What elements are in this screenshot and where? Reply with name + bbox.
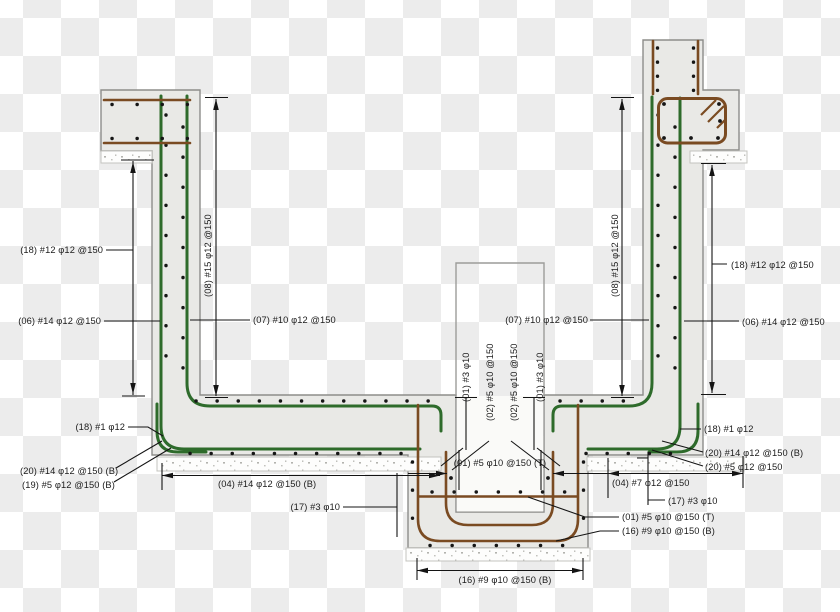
- callout-slab-bottom-dist-left: (19) #5 φ12 @150 (B): [22, 480, 115, 490]
- callout-slab-corner-right: (18) #1 φ12: [704, 424, 754, 434]
- callout-pit-top-mesh-right: (01) #5 φ10 @150 (T): [622, 512, 714, 522]
- callout-right-wall-horiz-outer: (18) #12 φ12 @150: [731, 260, 814, 270]
- callout-center-dowel-right: (02) #5 φ10 @150: [509, 343, 519, 421]
- callout-right-wall-vert-outer: (06) #14 φ12 @150: [742, 317, 825, 327]
- callout-slab-ties-right: (17) #3 φ10: [668, 496, 718, 506]
- callout-left-wall-horiz-outer: (18) #12 φ12 @150: [20, 245, 103, 255]
- green-bar-section-dots-walls: [166, 115, 675, 395]
- callout-pit-bottom-mesh: (16) #9 φ10 @150 (B): [459, 575, 552, 585]
- callout-slab-bottom-span-left: (04) #14 φ12 @150 (B): [218, 479, 316, 489]
- callout-right-wall-horiz-inner: (08) #15 φ12 @150: [610, 214, 620, 297]
- drawing-canvas: (18) #12 φ12 @150 (06) #14 φ12 @150 (07)…: [0, 0, 840, 612]
- callout-slab-ties-left: (17) #3 φ10: [290, 502, 340, 512]
- callout-slab-bottom-dist-right: (20) #5 φ12 @150: [705, 462, 783, 472]
- rebar-section-drawing: (18) #12 φ12 @150 (06) #14 φ12 @150 (07)…: [0, 0, 840, 612]
- concrete-outline: [101, 40, 739, 548]
- callout-center-tie-left: (01) #3 φ10: [461, 352, 471, 402]
- callout-slab-bottom-main-right: (20) #14 φ12 @150 (B): [705, 448, 803, 458]
- pit-void: [457, 396, 544, 512]
- callout-slab-corner-left: (18) #1 φ12: [75, 422, 125, 432]
- callout-slab-bottom-span-right: (04) #7 φ12 @150: [612, 478, 690, 488]
- callout-center-dowel-left: (02) #5 φ10 @150: [485, 343, 495, 421]
- callout-left-wall-horiz-inner: (08) #15 φ12 @150: [203, 214, 213, 297]
- callout-pit-top-mesh: (01) #5 φ10 @150 (T): [454, 458, 546, 468]
- callout-center-tie-right: (01) #3 φ10: [535, 352, 545, 402]
- callout-left-wall-vert-outer: (06) #14 φ12 @150: [18, 316, 101, 326]
- callout-left-wall-vert-inner: (07) #10 φ12 @150: [253, 315, 336, 325]
- callout-pit-bottom-mesh-right: (16) #9 φ10 @150 (B): [622, 526, 715, 536]
- callout-right-wall-vert-inner: (07) #10 φ12 @150: [505, 315, 588, 325]
- callout-slab-bottom-main-left: (20) #14 φ12 @150 (B): [20, 466, 118, 476]
